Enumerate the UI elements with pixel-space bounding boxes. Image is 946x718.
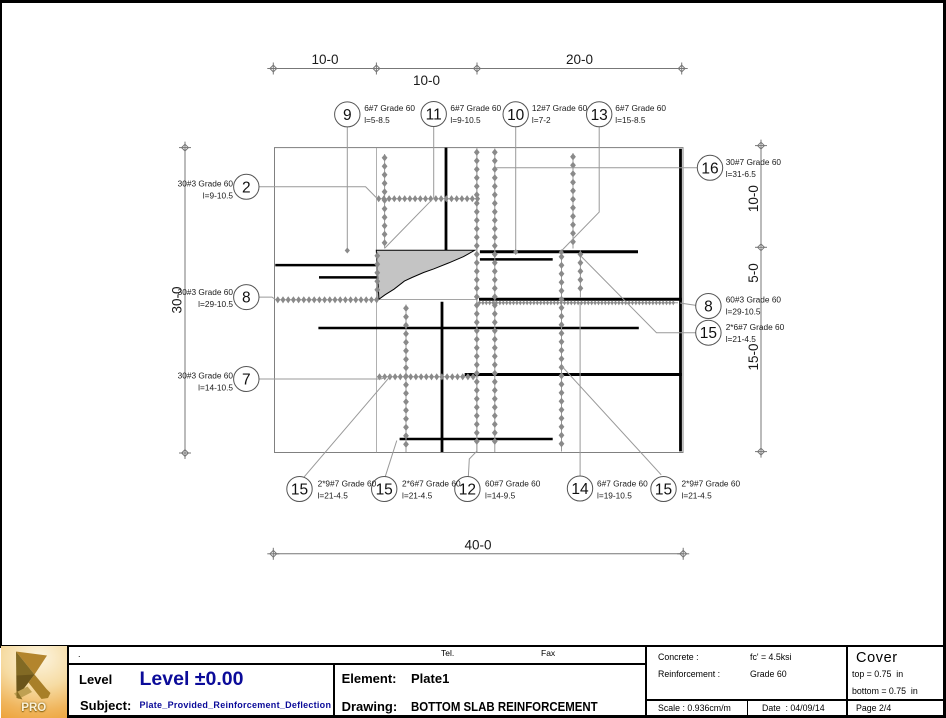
svg-text:2*9#7 Grade 60: 2*9#7 Grade 60 [682,479,741,489]
svg-text:l=7-2: l=7-2 [532,115,551,125]
svg-text:l=19-10.5: l=19-10.5 [597,491,632,501]
svg-text:2: 2 [242,179,251,196]
svg-text:2*6#7 Grade 60: 2*6#7 Grade 60 [726,322,785,332]
svg-text:15: 15 [291,482,308,499]
svg-text:30#3 Grade 60: 30#3 Grade 60 [178,287,234,297]
svg-text:l=5-8.5: l=5-8.5 [364,115,390,125]
svg-text:8: 8 [242,290,251,307]
svg-text:10-0: 10-0 [311,52,338,67]
svg-text:10-0: 10-0 [413,73,440,88]
svg-text:l=21-4.5: l=21-4.5 [682,491,713,501]
svg-text:13: 13 [591,107,608,124]
svg-text:l=14-10.5: l=14-10.5 [198,383,233,393]
svg-text:l=21-4.5: l=21-4.5 [726,334,757,344]
svg-text:20-0: 20-0 [566,52,593,67]
svg-text:15: 15 [376,482,393,499]
svg-text:6#7 Grade 60: 6#7 Grade 60 [450,103,501,113]
svg-text:12#7 Grade 60: 12#7 Grade 60 [532,103,588,113]
svg-text:8: 8 [704,299,713,316]
svg-text:l=29-10.5: l=29-10.5 [726,307,761,317]
svg-text:15-0: 15-0 [746,343,761,370]
svg-text:l=31-6.5: l=31-6.5 [726,169,757,179]
svg-text:15: 15 [655,482,672,499]
svg-text:12: 12 [459,482,476,499]
svg-text:15: 15 [700,325,717,342]
svg-text:l=15-8.5: l=15-8.5 [615,115,646,125]
svg-text:6#7 Grade 60: 6#7 Grade 60 [364,103,415,113]
svg-text:11: 11 [426,107,442,124]
svg-text:60#7 Grade 60: 60#7 Grade 60 [485,479,541,489]
svg-text:5-0: 5-0 [746,263,761,283]
svg-text:l=21-4.5: l=21-4.5 [318,491,349,501]
svg-text:l=9-10.5: l=9-10.5 [450,115,481,125]
svg-text:60#3 Grade 60: 60#3 Grade 60 [726,295,782,305]
svg-text:2*9#7 Grade 60: 2*9#7 Grade 60 [318,479,377,489]
svg-text:30#7 Grade 60: 30#7 Grade 60 [726,157,782,167]
svg-text:10: 10 [507,107,525,124]
svg-text:2*6#7 Grade 60: 2*6#7 Grade 60 [402,479,461,489]
svg-text:l=29-10.5: l=29-10.5 [198,299,233,309]
svg-text:40-0: 40-0 [464,538,491,553]
svg-text:l=9-10.5: l=9-10.5 [203,190,234,200]
svg-text:30#3 Grade 60: 30#3 Grade 60 [178,178,234,188]
svg-text:30#3 Grade 60: 30#3 Grade 60 [178,371,234,381]
svg-text:14: 14 [571,481,589,498]
svg-text:6#7 Grade 60: 6#7 Grade 60 [597,479,648,489]
svg-text:l=14-9.5: l=14-9.5 [485,491,516,501]
svg-text:10-0: 10-0 [746,185,761,212]
svg-text:16: 16 [701,160,718,177]
svg-text:9: 9 [343,107,352,124]
svg-text:7: 7 [242,372,251,389]
svg-text:6#7 Grade 60: 6#7 Grade 60 [615,103,666,113]
svg-text:l=21-4.5: l=21-4.5 [402,491,433,501]
